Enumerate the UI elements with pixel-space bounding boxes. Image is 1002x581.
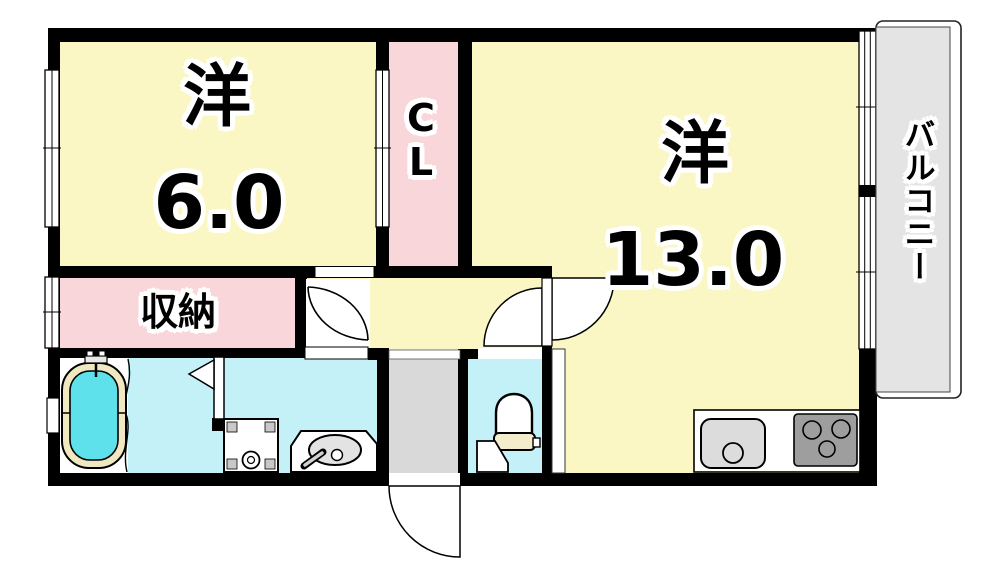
toilet-tank: [494, 433, 535, 450]
closet-label: CL: [402, 96, 440, 184]
window-bathroom: [47, 398, 59, 433]
toilet-handle: [533, 438, 540, 447]
room6-area-label: 6.0: [153, 166, 284, 240]
wall-washroom-entrance: [377, 353, 389, 478]
washroom-opening: [305, 347, 368, 359]
wall-toilet-right: [542, 346, 552, 478]
room6-name-label: 洋: [183, 64, 251, 132]
entrance-door-opening: [389, 473, 460, 486]
toilet-bowl: [496, 394, 532, 436]
bath-door-leaf: [214, 357, 224, 419]
entrance-step: [389, 350, 460, 359]
pipe-space: [552, 349, 565, 473]
storage-label: 収納: [140, 293, 216, 331]
sink-drain: [723, 443, 743, 463]
wall-entrance-toilet: [458, 349, 468, 478]
floor-plan: 洋 6.0 洋 13.0 CL 収納 バルコニー: [0, 0, 1002, 581]
vanity-sink: [291, 431, 377, 472]
room6-door-opening: [315, 267, 374, 278]
balcony-label: バルコニー: [901, 119, 932, 284]
washing-machine-pan: [224, 419, 278, 472]
room13-name-label: 洋: [661, 121, 729, 189]
tub-faucet: [85, 356, 107, 363]
window-center-post: [859, 185, 876, 197]
entrance-door-swing: [389, 486, 460, 557]
wall-storage-right: [295, 266, 307, 358]
entrance-floor: [383, 353, 468, 478]
wall-toilet-top-stub: [458, 349, 478, 359]
bathtub: [62, 351, 126, 468]
room13-area-label: 13.0: [602, 223, 785, 297]
toilet-door-opening: [478, 348, 542, 359]
wall-closet-room13: [458, 28, 472, 272]
room13-door-leaf: [542, 278, 552, 346]
kitchen-counter: [694, 410, 860, 472]
drain: [243, 452, 260, 469]
